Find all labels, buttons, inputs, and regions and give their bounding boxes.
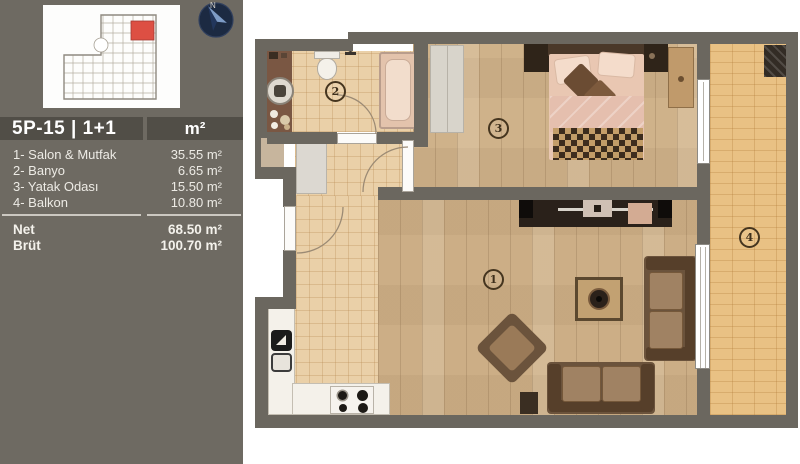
toilet-bowl <box>317 58 337 80</box>
wall-segment <box>255 297 268 428</box>
nightstand-right <box>642 44 668 72</box>
wall-segment <box>267 132 337 144</box>
wall-segment <box>786 32 798 428</box>
entrance-door <box>284 206 296 251</box>
bed-blanket <box>553 128 643 160</box>
hall-cabinet <box>296 137 327 194</box>
wall-segment <box>255 167 296 179</box>
wall-segment <box>283 250 296 299</box>
room-badge-bedroom: 3 <box>488 118 509 139</box>
tv-unit <box>519 199 672 227</box>
wall-segment <box>283 179 296 207</box>
bathtub-basin <box>385 59 411 121</box>
faucet-icon <box>345 52 356 55</box>
washing-machine-door <box>274 85 286 97</box>
room-badge-balcony: 4 <box>739 227 760 248</box>
kitchen-sink-basin <box>271 353 292 372</box>
wall-segment <box>348 32 798 44</box>
bath-decor <box>284 124 290 130</box>
floorplan: 1 2 3 4 <box>0 0 800 464</box>
room-badge-living: 1 <box>483 269 504 290</box>
wardrobe <box>430 45 464 133</box>
sofa-vertical <box>644 256 697 361</box>
wall-segment <box>414 44 428 147</box>
wall-segment <box>697 44 710 80</box>
wall-segment <box>255 138 261 168</box>
sofa-horizontal <box>547 362 655 414</box>
wall-segment <box>255 39 267 138</box>
pillow <box>597 51 636 78</box>
wall-segment <box>697 200 710 245</box>
wall-segment <box>697 368 710 415</box>
bath-decor <box>271 122 278 129</box>
wall-segment <box>255 415 798 428</box>
wall-segment <box>697 163 710 200</box>
room-badge-bath: 2 <box>325 81 346 102</box>
floorplan-card: N 5P-15 | 1+1 m² 1- Salon & Mutfak 35.55… <box>0 0 800 464</box>
coffee-table <box>575 277 623 321</box>
side-table <box>520 392 538 414</box>
bedroom-window <box>697 79 710 164</box>
bathroom-door <box>337 133 377 144</box>
wall-segment <box>255 39 353 51</box>
bedroom-door <box>402 140 414 192</box>
vanity-accessory <box>269 52 278 59</box>
stove <box>330 386 374 414</box>
balcony-door-window <box>695 244 710 369</box>
tv-side-box <box>628 203 652 224</box>
dresser <box>668 47 694 108</box>
nightstand-left <box>524 44 550 72</box>
bed-duvet <box>550 96 644 132</box>
wall-segment <box>378 187 710 200</box>
vanity-accessory <box>281 53 287 58</box>
bath-decor <box>270 110 278 118</box>
tv-center-box <box>583 199 612 217</box>
